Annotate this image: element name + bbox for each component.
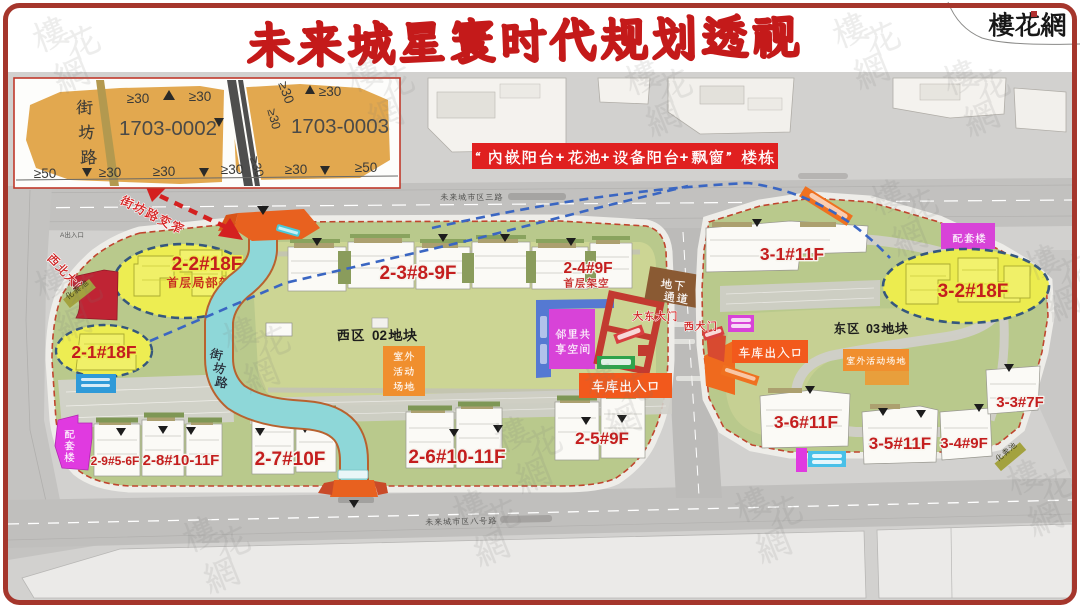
svg-text:≥30: ≥30	[189, 89, 211, 104]
svg-text:2-7#10F: 2-7#10F	[255, 449, 326, 470]
svg-text:03: 03	[866, 322, 880, 336]
svg-text:≥30: ≥30	[99, 165, 121, 180]
svg-text:2-9#5-6F: 2-9#5-6F	[91, 454, 140, 468]
svg-text:3-5#11F: 3-5#11F	[869, 434, 931, 453]
svg-text:3-4#9F: 3-4#9F	[940, 435, 988, 452]
svg-text:≥30: ≥30	[153, 164, 175, 179]
svg-text:≥30: ≥30	[319, 84, 341, 99]
svg-text:+: +	[556, 149, 565, 166]
svg-text:2-3#8-9F: 2-3#8-9F	[379, 263, 456, 284]
svg-text:2-1#18F: 2-1#18F	[71, 342, 136, 362]
svg-text:≥30: ≥30	[221, 162, 243, 177]
svg-text:3-2#18F: 3-2#18F	[938, 281, 1009, 302]
svg-text:3-3#7F: 3-3#7F	[996, 394, 1044, 411]
svg-text:3-6#11F: 3-6#11F	[774, 412, 839, 432]
svg-text:≥30: ≥30	[285, 162, 307, 177]
svg-text:+: +	[601, 149, 610, 166]
svg-text:3-1#11F: 3-1#11F	[760, 244, 825, 264]
svg-text:02: 02	[372, 328, 387, 343]
svg-text:2-8#10-11F: 2-8#10-11F	[143, 452, 220, 469]
svg-text:2-6#10-11F: 2-6#10-11F	[408, 447, 505, 468]
svg-text:A出入口: A出入口	[60, 230, 84, 239]
svg-text:≥50: ≥50	[34, 166, 56, 181]
svg-text:≥30: ≥30	[127, 91, 149, 106]
svg-text:1703-0002: 1703-0002	[119, 117, 217, 140]
svg-text:2-2#18F: 2-2#18F	[172, 254, 243, 275]
svg-text:+: +	[680, 149, 689, 166]
svg-text:2-4#9F: 2-4#9F	[563, 260, 612, 277]
svg-text:≥50: ≥50	[355, 160, 377, 175]
